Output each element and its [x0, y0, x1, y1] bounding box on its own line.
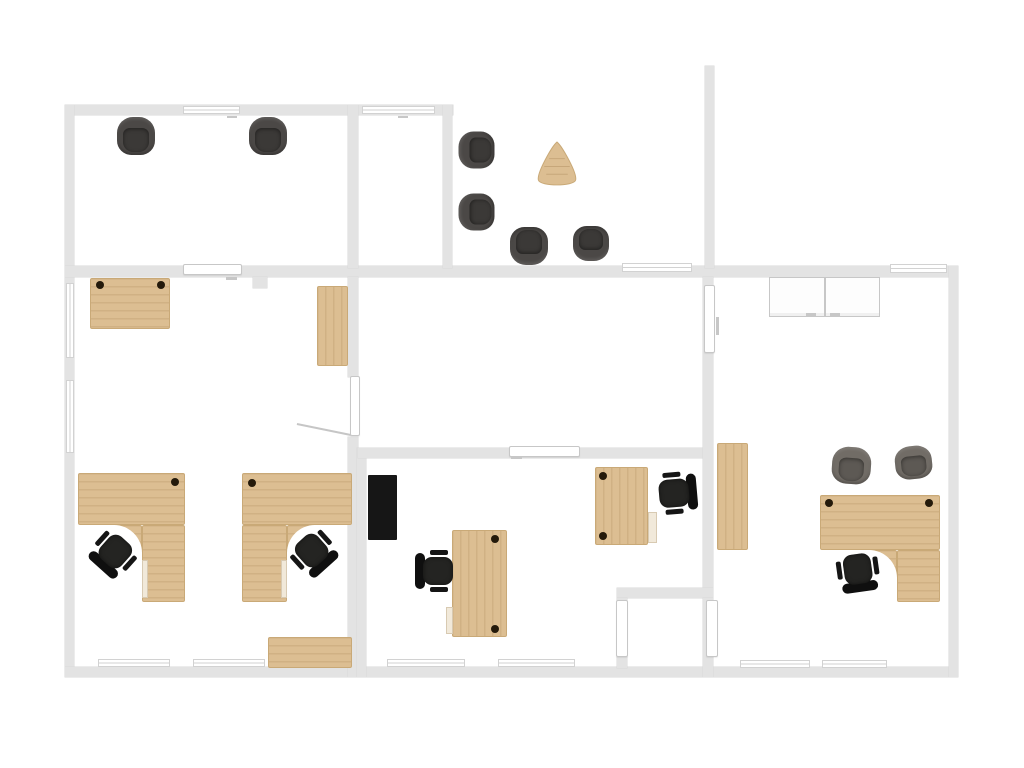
desk-grommet-2: [157, 281, 165, 289]
wall-leftroom-right-upper: [348, 277, 358, 377]
corner-desk-2-slab[interactable]: [242, 473, 352, 525]
floorplan-screenshot: [0, 0, 1024, 768]
office-chair-armrest-left: [430, 550, 448, 555]
door-alcove-right-leaf[interactable]: [706, 600, 718, 657]
window-handle-mark-1: [227, 116, 237, 118]
window-mid-lounge: [622, 263, 692, 272]
tub-chair-seat: [900, 454, 926, 477]
lounge-triangle-table[interactable]: [533, 141, 581, 188]
wall-lounge-right: [705, 66, 714, 268]
window-handle-mark-2: [398, 116, 408, 118]
tub-chair-seat: [516, 230, 541, 254]
window-bottom-1: [98, 659, 170, 667]
office-chair-armrest-left: [836, 561, 843, 580]
drawer-unit-mid-desk[interactable]: [446, 607, 453, 634]
window-top-2: [362, 106, 435, 114]
window-left-1: [66, 283, 74, 358]
window-top-1: [183, 106, 240, 114]
tub-chair-seat: [579, 228, 603, 250]
desk-grommet-6: [491, 625, 499, 633]
window-mid-right: [890, 264, 947, 273]
storage-cabinet-2[interactable]: [825, 277, 880, 317]
office-chair-corner-desk-3[interactable]: [830, 543, 886, 599]
visitor-chair-right-room-b[interactable]: [893, 444, 933, 481]
tub-chair-seat: [255, 128, 280, 152]
window-bottom-6: [822, 660, 887, 668]
desk-grommet-1: [96, 281, 104, 289]
tub-chair-seat: [469, 138, 491, 162]
drawer-unit-desk2[interactable]: [281, 560, 287, 598]
tub-chair-room1-a[interactable]: [117, 117, 155, 155]
triangle-table-top: [538, 142, 576, 185]
corner-desk-3-leg[interactable]: [897, 550, 940, 602]
tub-chair-lounge-d[interactable]: [573, 226, 609, 261]
wall-right: [949, 266, 958, 677]
tub-chair-seat: [123, 128, 148, 152]
desk-grommet-5: [491, 535, 499, 543]
door-leftroom-leaf[interactable]: [350, 376, 360, 436]
wall-tv-screen[interactable]: [368, 475, 397, 540]
window-bottom-5: [740, 660, 810, 668]
desk-grommet-9: [825, 499, 833, 507]
wall-bottom: [65, 667, 958, 677]
office-chair-armrest-right: [662, 472, 680, 479]
desk-grommet-7: [599, 472, 607, 480]
desk-grommet-3: [171, 478, 179, 486]
door-swing-line: [297, 423, 351, 435]
window-bottom-3: [387, 659, 465, 667]
shelf-left-room[interactable]: [317, 286, 348, 366]
door-midwall-sliding[interactable]: [183, 264, 242, 275]
tub-chair-lounge-b[interactable]: [458, 194, 494, 231]
cabinet-handle-2: [830, 313, 840, 316]
door-alcove-left-leaf[interactable]: [616, 600, 628, 657]
window-left-2: [66, 380, 74, 453]
corner-desk-1-slab[interactable]: [78, 473, 185, 525]
desk-grommet-10: [925, 499, 933, 507]
door-handle-mark-3: [716, 317, 719, 335]
office-chair-armrest-right: [872, 556, 879, 575]
visitor-chair-right-room-a[interactable]: [830, 445, 871, 485]
desk-grommet-4: [248, 479, 256, 487]
tall-cabinet-right-room[interactable]: [717, 443, 748, 550]
drawer-unit-desk1[interactable]: [142, 560, 148, 598]
office-chair-armrest-left: [665, 508, 683, 515]
floorplan-canvas: [0, 0, 1024, 768]
storage-cabinet-1[interactable]: [769, 277, 825, 317]
cabinet-handle-1: [806, 313, 816, 316]
tub-chair-seat: [837, 457, 864, 482]
office-chair-armrest-right: [430, 587, 448, 592]
wall-room1-right: [348, 105, 358, 268]
tub-chair-lounge-c[interactable]: [510, 227, 548, 265]
corner-desk-1-leg[interactable]: [142, 525, 185, 602]
office-chair-mid-room[interactable]: [411, 546, 461, 596]
office-chair-seat: [842, 552, 874, 586]
tub-chair-room1-b[interactable]: [249, 117, 287, 155]
wall-alcove-top: [617, 588, 713, 598]
office-chair-seat: [423, 557, 453, 585]
office-chair-seat: [658, 478, 690, 509]
window-bottom-4: [498, 659, 575, 667]
tub-chair-lounge-a[interactable]: [458, 132, 494, 169]
sideboard-left-room[interactable]: [268, 637, 352, 668]
tub-chair-seat: [469, 200, 491, 224]
window-bottom-2: [193, 659, 265, 667]
door-rightroom-leaf[interactable]: [704, 285, 715, 353]
door-handle-mark-1: [226, 277, 237, 280]
corner-desk-3-slab[interactable]: [820, 495, 940, 550]
office-chair-open-area[interactable]: [649, 466, 703, 520]
wall-midroom-left: [357, 448, 366, 677]
wall-narrow-room-right: [443, 105, 452, 268]
wall-column-stub: [253, 277, 267, 288]
door-handle-mark-2: [511, 456, 522, 459]
desk-grommet-8: [599, 532, 607, 540]
